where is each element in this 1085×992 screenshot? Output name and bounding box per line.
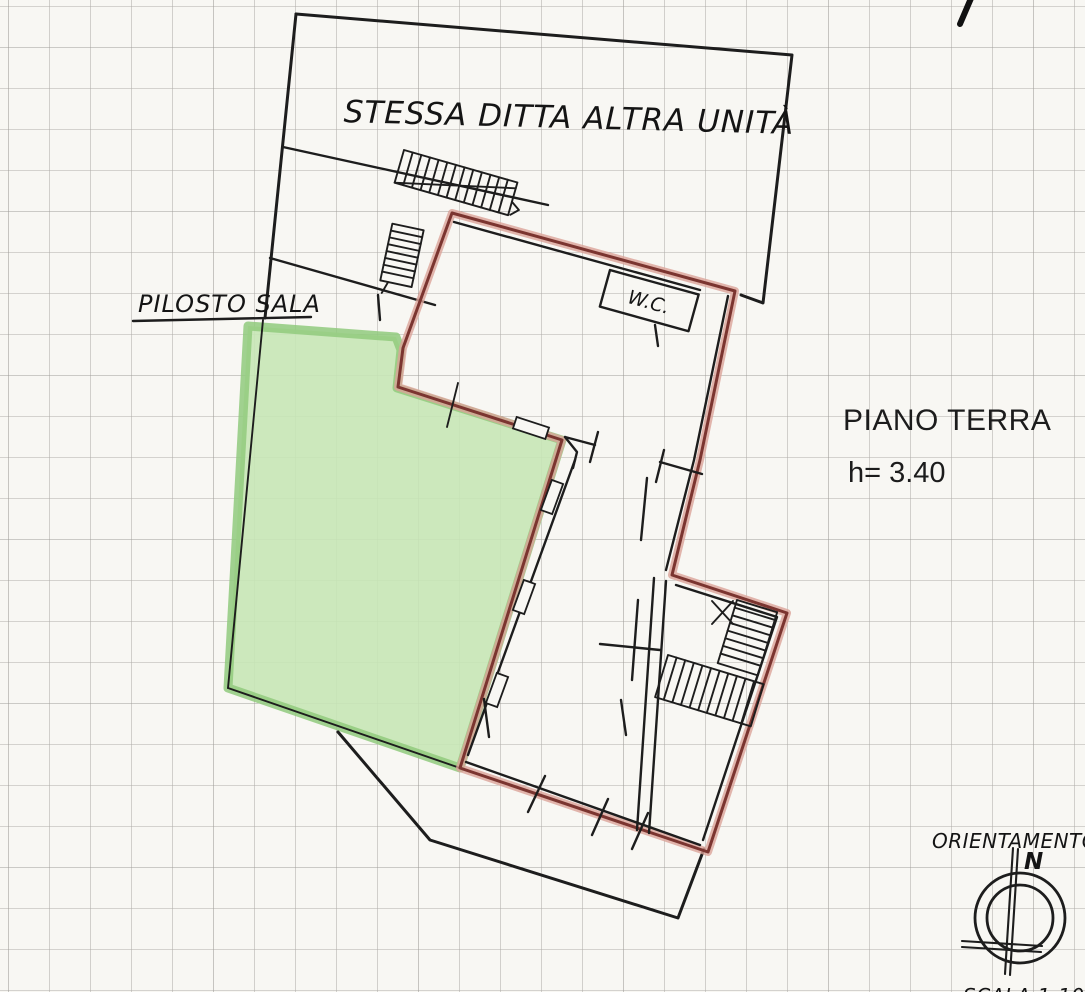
north-label: N (1024, 849, 1043, 875)
scale-label: SCALA 1:100 (963, 984, 1085, 992)
sala-label: PILOSTO SALA (138, 290, 321, 318)
floor-label: PIANO TERRA (843, 404, 1051, 437)
floor-plan-drawing: W.C. (0, 0, 1085, 992)
floor-height-label: h= 3.40 (848, 457, 946, 489)
floor-plan-page: W.C. (0, 0, 1085, 992)
orientation-title: ORIENTAMENTO (932, 829, 1085, 853)
